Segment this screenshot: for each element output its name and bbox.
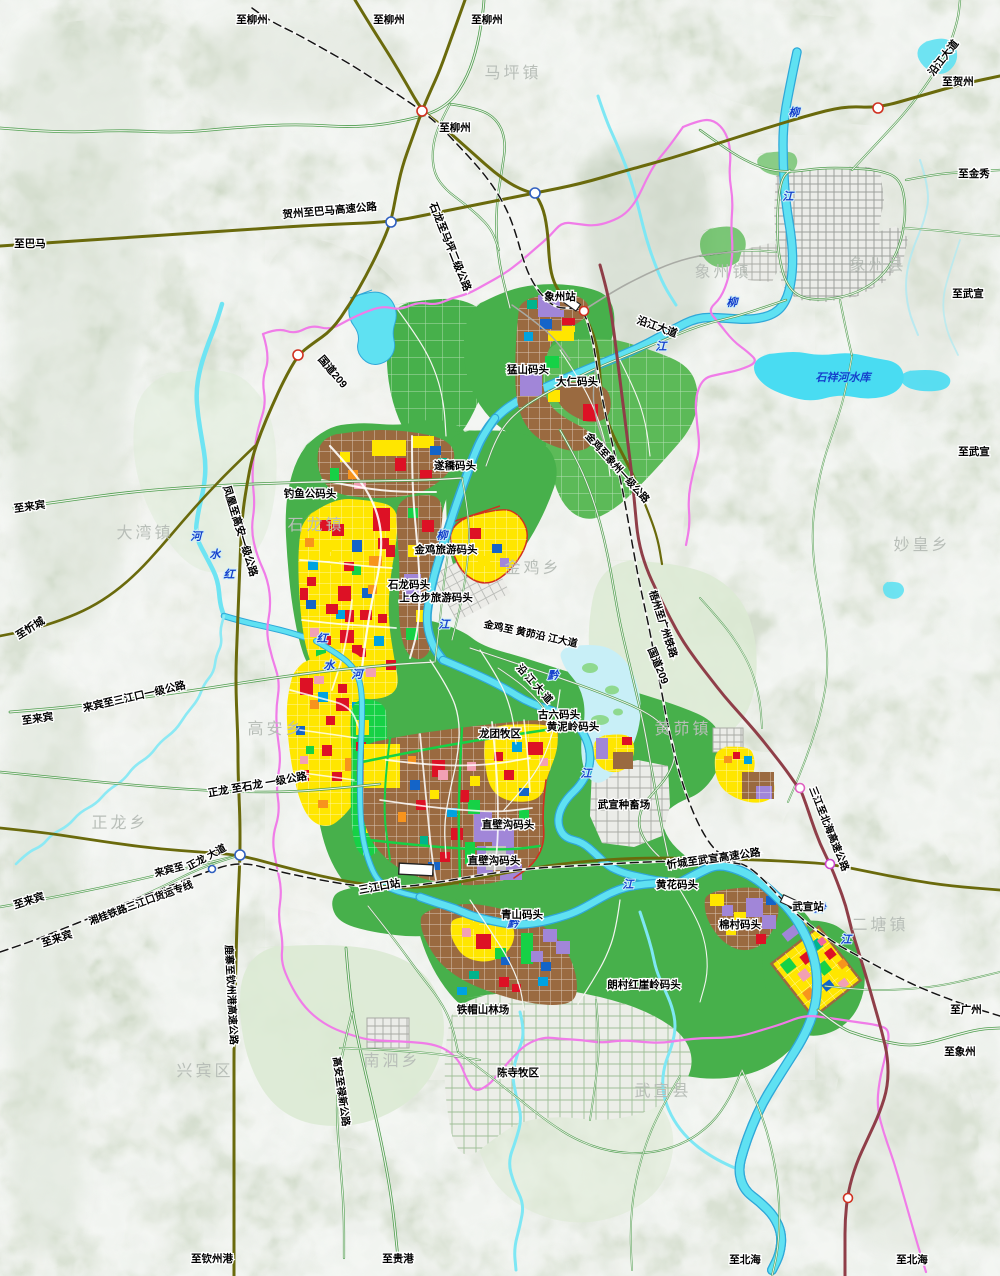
svg-text:直壁沟码头: 直壁沟码头 [468, 854, 521, 867]
svg-text:妙皇乡: 妙皇乡 [893, 536, 950, 554]
svg-text:水: 水 [324, 659, 336, 672]
svg-text:至巴马: 至巴马 [14, 238, 46, 250]
svg-text:龙团牧区: 龙团牧区 [478, 727, 521, 740]
svg-text:至柳州: 至柳州 [236, 13, 268, 26]
svg-text:黄花码头: 黄花码头 [656, 878, 698, 891]
svg-text:武宣种畜场: 武宣种畜场 [598, 798, 651, 811]
svg-text:至北海: 至北海 [729, 1253, 761, 1266]
svg-text:至钦州港: 至钦州港 [191, 1252, 233, 1265]
svg-text:黔: 黔 [547, 669, 561, 682]
svg-text:象州站: 象州站 [544, 290, 576, 303]
svg-text:至象州: 至象州 [944, 1045, 976, 1058]
svg-text:青山码头: 青山码头 [501, 908, 543, 921]
svg-text:武宣站: 武宣站 [792, 900, 824, 913]
svg-text:至贵港: 至贵港 [382, 1252, 414, 1265]
svg-text:至柳州: 至柳州 [471, 13, 503, 26]
svg-text:朗村红崖岭码头: 朗村红崖岭码头 [607, 978, 681, 991]
svg-text:武宣县: 武宣县 [634, 1082, 691, 1100]
svg-text:石祥河水库: 石祥河水库 [816, 371, 873, 384]
svg-text:至金秀: 至金秀 [958, 167, 990, 180]
svg-text:直壁沟码头: 直壁沟码头 [482, 818, 535, 831]
svg-text:象州镇: 象州镇 [694, 263, 751, 281]
svg-text:兴宾区: 兴宾区 [176, 1062, 233, 1080]
svg-text:大仁码头: 大仁码头 [556, 375, 598, 388]
svg-text:至武宣: 至武宣 [958, 445, 990, 458]
svg-text:至柳州: 至柳州 [373, 13, 405, 26]
svg-text:马坪镇: 马坪镇 [484, 64, 541, 82]
svg-text:高安乡: 高安乡 [247, 720, 304, 738]
svg-text:棉村码头: 棉村码头 [719, 918, 761, 931]
svg-text:陈寺牧区: 陈寺牧区 [497, 1066, 539, 1079]
svg-text:上仓步旅游码头: 上仓步旅游码头 [399, 591, 473, 604]
svg-text:金鸡旅游码头: 金鸡旅游码头 [414, 543, 478, 556]
svg-text:至武宣: 至武宣 [952, 287, 984, 300]
svg-text:遂穚码头: 遂穚码头 [434, 459, 476, 472]
svg-text:铁帽山林场: 铁帽山林场 [457, 1003, 510, 1016]
svg-text:猛山码头: 猛山码头 [506, 363, 549, 376]
svg-text:黄泥岭码头: 黄泥岭码头 [547, 720, 600, 733]
svg-text:至北海: 至北海 [896, 1253, 928, 1266]
svg-text:南泗乡: 南泗乡 [363, 1052, 420, 1070]
svg-text:石龙码头: 石龙码头 [387, 578, 430, 591]
svg-text:至贺州: 至贺州 [942, 75, 974, 88]
svg-text:至柳州: 至柳州 [439, 121, 471, 134]
svg-text:钓鱼公码头: 钓鱼公码头 [284, 487, 337, 500]
svg-text:金鸡乡: 金鸡乡 [504, 559, 561, 577]
svg-text:象州县: 象州县 [849, 256, 906, 274]
svg-text:黄茆镇: 黄茆镇 [654, 720, 711, 738]
svg-text:至广州: 至广州 [950, 1003, 982, 1016]
svg-text:石龙镇: 石龙镇 [287, 516, 344, 534]
svg-text:古六码头: 古六码头 [538, 708, 580, 721]
svg-text:正龙乡: 正龙乡 [91, 814, 148, 832]
svg-text:大湾镇: 大湾镇 [116, 524, 173, 542]
svg-text:水: 水 [210, 548, 222, 561]
svg-text:二塘镇: 二塘镇 [851, 916, 908, 934]
